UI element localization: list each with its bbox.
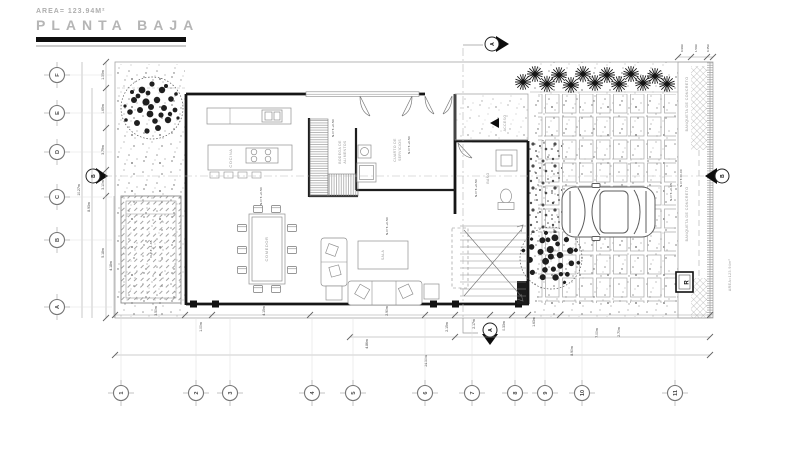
level-bano: N.P.T.+0.50 — [474, 179, 478, 197]
grid-bubble-3: 3 — [217, 380, 243, 406]
svg-text:5.18m: 5.18m — [101, 248, 105, 258]
level-cocina: N.P.T.+0.50 — [259, 187, 263, 205]
svg-text:4.18m: 4.18m — [109, 261, 113, 271]
washer-icon — [358, 145, 371, 158]
sidewalk-label-1: BANQUETA DE CONCRETO — [685, 77, 689, 132]
floor-plan-canvas: N.P.T.-1.35 — [0, 0, 800, 450]
room-label-cocina: COCINA — [228, 148, 233, 167]
svg-text:1.50m: 1.50m — [694, 43, 698, 52]
svg-text:6: 6 — [423, 391, 429, 394]
svg-text:1.65m: 1.65m — [101, 104, 105, 114]
section-letter: A — [488, 328, 494, 332]
svg-text:2.15m: 2.15m — [445, 322, 449, 332]
room-label-bodega-2: ALIMENTOS — [343, 140, 347, 163]
level-bodega: N.P.T.+0.50 — [331, 119, 335, 137]
svg-text:3.50m: 3.50m — [154, 306, 158, 316]
svg-text:11: 11 — [673, 390, 679, 396]
svg-text:8: 8 — [513, 391, 519, 394]
grid-bubble-4: 4 — [299, 380, 325, 406]
grid-bubble-7: 7 — [459, 380, 485, 406]
room-label-comedor: COMEDOR — [264, 236, 269, 261]
floor-plan-page: AREA= 123.94M² PLANTA BAJA — [0, 0, 800, 450]
svg-text:F: F — [55, 73, 61, 77]
utility-meter: R — [676, 272, 693, 292]
section-letter: B — [91, 174, 97, 178]
svg-text:7: 7 — [470, 391, 476, 394]
grid-bubble-9: 9 — [532, 380, 558, 406]
grid-bubble-2: 2 — [183, 380, 209, 406]
level-garage: N.P.T.+0.05 — [669, 183, 673, 201]
svg-text:3.79m: 3.79m — [101, 145, 105, 155]
area-side-note: AREA=123.94m² — [728, 258, 732, 291]
svg-text:A: A — [55, 305, 61, 309]
svg-text:1.00m: 1.00m — [199, 322, 203, 332]
section-marker-a-bottom: A — [482, 323, 498, 345]
grid-bubble-B: B — [44, 227, 70, 253]
grid-bubble-5: 5 — [340, 380, 366, 406]
grid-bubble-E: E — [44, 100, 70, 126]
svg-text:B: B — [55, 238, 61, 242]
entry-label: ACCESO — [503, 115, 507, 132]
section-letter: B — [720, 174, 726, 178]
planter-bed: N.P.T.-1.35 — [121, 196, 181, 303]
svg-text:4.15m: 4.15m — [262, 306, 266, 316]
svg-text:0.90m: 0.90m — [680, 43, 684, 52]
room-label-bodega-1: BODEGA DE — [338, 140, 342, 164]
kitchen-island — [208, 145, 292, 170]
svg-text:1: 1 — [119, 391, 125, 394]
svg-text:1.63m: 1.63m — [532, 317, 536, 327]
section-marker-a-top: A — [485, 36, 509, 52]
sidewalk-label-2: BANQUETA DE CONCRETO — [685, 187, 689, 242]
room-label-cuarto-2: SERVICIOS — [398, 139, 402, 161]
room-label-cuarto-1: CUARTO DE — [393, 138, 397, 162]
grid-bubble-D: D — [44, 139, 70, 165]
car-icon — [562, 184, 655, 241]
svg-text:10.27m: 10.27m — [77, 184, 81, 195]
svg-text:3.10m: 3.10m — [101, 180, 105, 190]
svg-text:2: 2 — [194, 391, 200, 394]
grid-bubble-11: 11 — [662, 380, 688, 406]
grid-bubble-F: F — [44, 62, 70, 88]
grid-bubble-A: A — [44, 294, 70, 320]
svg-text:7.00m: 7.00m — [595, 328, 599, 338]
room-label-bano: BAÑO — [485, 172, 490, 183]
grid-bubble-1: 1 — [108, 380, 134, 406]
svg-text:24.50m: 24.50m — [424, 355, 428, 366]
meter-label: R — [685, 280, 691, 285]
grid-bubble-6: 6 — [412, 380, 438, 406]
svg-text:D: D — [55, 150, 61, 154]
level-planter: N.P.T.-1.35 — [149, 240, 153, 257]
svg-text:0.33m: 0.33m — [502, 321, 506, 331]
svg-text:C: C — [55, 195, 61, 199]
grid-bubble-10: 10 — [569, 380, 595, 406]
grid-bubble-C: C — [44, 184, 70, 210]
svg-text:8.93m: 8.93m — [87, 202, 91, 212]
side-table — [326, 286, 342, 300]
level-sidewalk: N.P.T.±0.00 — [679, 169, 683, 187]
svg-text:3: 3 — [228, 391, 234, 394]
svg-text:9: 9 — [543, 391, 549, 394]
room-label-sala: SALA — [381, 250, 385, 261]
svg-text:4.86m: 4.86m — [365, 339, 369, 349]
side-table — [424, 284, 439, 299]
svg-text:5: 5 — [351, 391, 357, 394]
svg-text:0.45m: 0.45m — [706, 43, 710, 52]
svg-text:E: E — [55, 111, 61, 115]
section-letter: A — [490, 42, 496, 46]
svg-text:2.70m: 2.70m — [617, 327, 621, 337]
sink-icon — [496, 150, 517, 171]
level-sala: N.P.T.+0.50 — [385, 217, 389, 235]
grid-bubble-8: 8 — [502, 380, 528, 406]
level-cuarto: N.P.T.+0.50 — [407, 136, 411, 154]
svg-text:2.17m: 2.17m — [472, 319, 476, 329]
svg-text:2.90m: 2.90m — [385, 306, 389, 316]
svg-text:8.90m: 8.90m — [570, 346, 574, 356]
svg-text:10: 10 — [580, 390, 586, 396]
